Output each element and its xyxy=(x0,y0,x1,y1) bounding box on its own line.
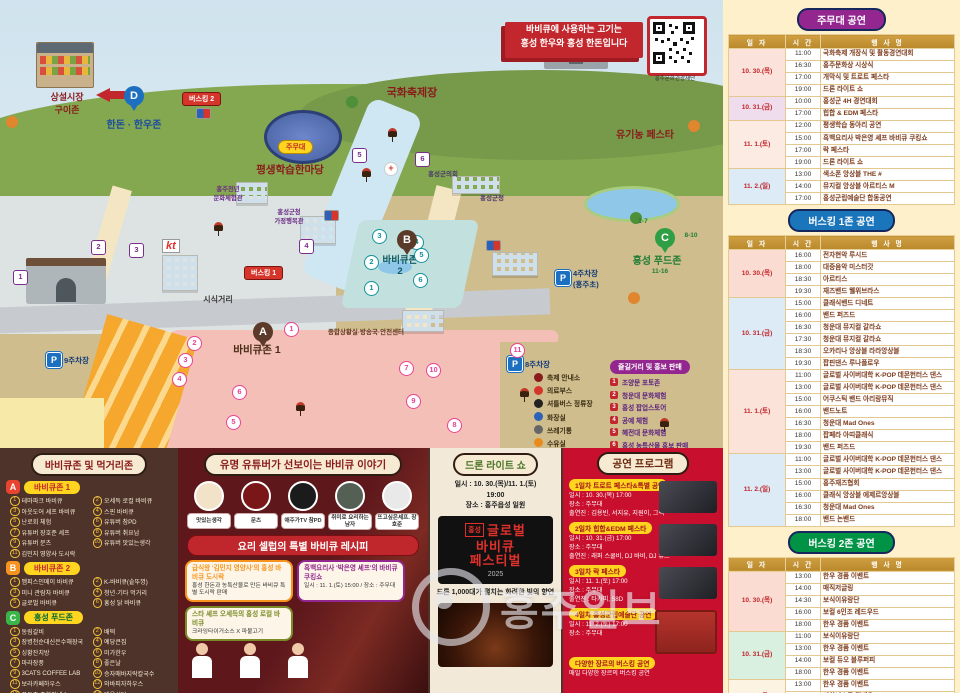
item-label: 김민지 영양사 도시락 xyxy=(22,549,76,558)
event-cell: 국화축제 개장식 및 활동경연대회 xyxy=(821,49,955,61)
bbq-photo xyxy=(438,603,553,667)
schedule-row: 10. 30.(목)11:00국화축제 개장식 및 활동경연대회 xyxy=(729,49,955,61)
program-item: 4일차 홍성군립예술단 공연일시 : 11. 2.(토) 17:00장소 : 주… xyxy=(569,608,717,654)
item-number: 8 xyxy=(93,658,103,668)
column-header: 행 사 명 xyxy=(821,557,955,571)
qr-caption: 홍주문화관광재단 xyxy=(640,74,710,82)
program-item-detail: 장소 : 주무대 xyxy=(569,501,655,510)
label-bbq-zone1: 바비큐존 1 xyxy=(222,342,292,357)
event-cell: 보컬 6인조 레드우드 xyxy=(821,607,955,619)
toilet-map-icon xyxy=(196,108,211,119)
youtuber-name: 맛있는생각 xyxy=(187,513,231,529)
youtuber-name: 취미로 요리하는남자 xyxy=(328,513,372,530)
zone-item: 2배떡 xyxy=(93,627,173,637)
medical-cross-icon: + xyxy=(384,162,398,176)
zone-item: 1멤피스인메이 바비큐 xyxy=(10,577,90,587)
event-cell: 청운대 Mad Ones xyxy=(821,418,955,430)
event-cell: 청운대 뮤지컬 갈라쇼 xyxy=(821,334,955,346)
event-cell: 한우 경품 이벤트 xyxy=(821,643,955,655)
event-cell: 뮤지컬 앙상블 아르티스 M xyxy=(821,181,955,193)
booth-number-bbq1: 5 xyxy=(226,415,241,430)
event-cell: 팝페라 아띠클래식 xyxy=(821,430,955,442)
zone-item: 1동림갈비 xyxy=(10,627,90,637)
enjoy-number: 1 xyxy=(610,378,618,386)
date-cell: 11. 1.(토) xyxy=(729,679,786,693)
youtuber: 취미로 요리하는남자 xyxy=(328,481,372,530)
label-main-stage: 주무대 xyxy=(278,140,313,154)
item-label: 와바피자하우스 xyxy=(104,679,143,688)
item-number: 6 xyxy=(93,648,103,658)
time-cell: 16:00 xyxy=(786,490,821,502)
event-cell: 팝핀댄스 루나폴로우 xyxy=(821,358,955,370)
time-cell: 16:00 xyxy=(786,607,821,619)
date-cell: 11. 2.(일) xyxy=(729,454,786,526)
attraction-number: 4 xyxy=(299,239,314,254)
schedule-row: 11. 1.(토)12:00평생학습 동아리 공연 xyxy=(729,121,955,133)
nursing-room-icon xyxy=(534,438,543,447)
time-cell: 14:00 xyxy=(786,583,821,595)
drone-caption: 드론 1,000대가 펼치는 화려한 빛의 향연 xyxy=(436,588,555,598)
program-item-detail: 출연진 : 타카피, 58D xyxy=(569,596,655,605)
event-cell: 매직저글링 xyxy=(821,583,955,595)
facility-legend-item: 쓰레기통 xyxy=(534,425,593,435)
recipe-title: 흑백요리사 '박은영 셰프'의 바비큐 쿠킹쇼 xyxy=(304,565,398,581)
item-number: 3 xyxy=(10,637,20,647)
label-food-range-left: 1-7 xyxy=(628,218,658,225)
facility-label: 의료부스 xyxy=(547,385,572,395)
recipe-desc: 크라잉타이거소스 X 파불고기 xyxy=(192,629,286,636)
qr-pattern xyxy=(653,22,695,64)
chef-figure xyxy=(287,643,309,678)
festival-logo-bbq: 바비큐 xyxy=(442,540,549,555)
event-cell: 흑백요리사 박은영 셰프 바비큐 쿠킹쇼 xyxy=(821,133,955,145)
youtuber-name: 뜨고싶은셰프. 장호준 xyxy=(375,513,419,530)
youtuber: 애주가TV 참PD xyxy=(281,481,325,530)
booth-number-bbq2: 2 xyxy=(364,255,379,270)
item-number: 10 xyxy=(93,669,103,679)
label-council: 홍성군의회 xyxy=(418,168,468,178)
item-label: 유튜버 맛있는생각 xyxy=(104,538,151,547)
enjoy-label: 공예 체험 xyxy=(622,415,648,425)
item-number: 3 xyxy=(10,588,20,598)
schedule-row: 11. 2.(일)11:00글로벌 사이버대학 K-POP 데몬헌터스 댄스 xyxy=(729,454,955,466)
time-cell: 17:30 xyxy=(786,334,821,346)
date-cell: 10. 31.(금) xyxy=(729,97,786,121)
time-cell: 13:00 xyxy=(786,643,821,655)
enjoy-number: 3 xyxy=(610,403,618,411)
zone-item: 10유튜버 맛있는생각 xyxy=(93,538,173,548)
event-cell: 홍주문화상 시상식 xyxy=(821,61,955,73)
zone-item: 5싱황잔치방 xyxy=(10,648,90,658)
booth-number-bbq1: 4 xyxy=(172,372,187,387)
zone-item: 4예당큰집 xyxy=(93,637,173,647)
item-number: 2 xyxy=(93,577,103,587)
attraction-number: 3 xyxy=(129,243,144,258)
artist-photo xyxy=(659,567,717,599)
zone-item: 7유튜버 장호준 셰프 xyxy=(10,528,90,538)
program-item-title: 2일차 힙합&EDM 페스타 xyxy=(569,522,652,534)
column-header: 일 자 xyxy=(729,236,786,250)
parking-icon: P xyxy=(46,352,62,368)
zone-item: 7마라장풍 xyxy=(10,658,90,668)
enjoy-legend-item: 4공예 체험 xyxy=(610,415,690,425)
program-item-detail: 장소 : 주무대 xyxy=(569,587,655,596)
event-cell: 재즈밴드 웰위브라스 xyxy=(821,286,955,298)
event-cell: 홍성군립예술단 합동공연 xyxy=(821,193,955,205)
zone-pin-letter: C xyxy=(661,232,669,244)
booth-number-bbq1: 6 xyxy=(232,385,247,400)
item-label: 동림갈비 xyxy=(22,627,44,636)
meat-banner: 바비큐에 사용하는 고기는 홍성 한우와 홍성 한돈입니다 xyxy=(505,22,643,58)
item-label: 아웃도어 셰프 바비큐 xyxy=(22,507,76,516)
time-cell: 17:00 xyxy=(786,109,821,121)
facility-legend-item: 수유실 xyxy=(534,438,593,448)
label-handon-zone: 한돈 · 한우존 xyxy=(92,116,176,131)
event-cell: 홍주재즈협회 xyxy=(821,478,955,490)
time-cell: 13:00 xyxy=(786,679,821,691)
zone-item: 2오세득 로컬 바비큐 xyxy=(93,496,173,506)
program-item-detail: 출연진 : 김용빈, 서지유, 지원이, 그랙 xyxy=(569,510,655,519)
event-cell: 밴드 퍼즈드 xyxy=(821,442,955,454)
recipe-desc: 일시 : 11. 1.(토) 15:00 / 장소 : 주무대 xyxy=(304,583,398,590)
event-cell: 밴드노트 xyxy=(821,406,955,418)
event-cell: 보식이유랑단 xyxy=(821,595,955,607)
schedule-row: 10. 30.(목)16:00전자현악 루시드 xyxy=(729,250,955,262)
item-label: K-바비큐(솥뚜껑) xyxy=(104,577,148,586)
item-number: 5 xyxy=(10,648,20,658)
date-cell: 10. 31.(금) xyxy=(729,631,786,679)
zone-item: 5난로회 체험 xyxy=(10,517,90,527)
time-cell: 13:00 xyxy=(786,169,821,181)
item-label: 마라장풍 xyxy=(22,658,44,667)
item-number: 9 xyxy=(10,538,20,548)
attraction-number: 2 xyxy=(91,240,106,255)
youtuber-avatar xyxy=(241,481,271,511)
item-number: 12 xyxy=(93,679,103,689)
toilet-icon xyxy=(534,412,543,421)
schedule-row: 10. 31.(금)10:00홍성군 4H 경연대회 xyxy=(729,97,955,109)
schedule-table: 버스킹 2존 공연일 자시 간행 사 명10. 30.(목)13:00한우 경품… xyxy=(728,531,955,693)
label-lifelong-learning: 평생학습한마당 xyxy=(240,162,340,177)
event-cell: 밴드 퍼즈드 xyxy=(821,310,955,322)
event-cell: 평생학습 동아리 공연 xyxy=(821,121,955,133)
youtuber-panel-title: 유명 유튜버가 선보이는 바비큐 이야기 xyxy=(204,453,402,476)
festival-logo-hongseong: 홍성 xyxy=(465,523,484,537)
time-cell: 18:30 xyxy=(786,274,821,286)
booth-number-bbq1: 9 xyxy=(406,394,421,409)
enjoy-legend-item: 3홍성 팝업스토어 xyxy=(610,402,690,412)
item-label: 멤피스인메이 바비큐 xyxy=(22,577,74,586)
label-heritage-center: 홍주천년 문화체험관 xyxy=(206,184,250,202)
facility-label: 축제 안내소 xyxy=(547,372,580,382)
schedule-grid: 일 자시 간행 사 명10. 30.(목)11:00국화축제 개장식 및 활동경… xyxy=(728,34,955,205)
time-cell: 18:00 xyxy=(786,430,821,442)
drone-show-panel: 드론 라이트 쇼 일시 : 10. 30.(목)/11. 1.(토) 19:00… xyxy=(428,448,563,693)
zone-item: 3장병천순대신은수해장국 xyxy=(10,637,90,647)
zone-pin-letter: A xyxy=(259,326,267,338)
zone-pin-letter: D xyxy=(130,90,138,102)
item-number: 13 xyxy=(10,690,20,693)
event-cell: 힙합 & EDM 페스타 xyxy=(821,109,955,121)
zone-item: 12와바피자하우스 xyxy=(93,679,173,689)
schedule-row: 11. 1.(토)11:00글로벌 사이버대학 K-POP 데몬헌터스 댄스 xyxy=(729,370,955,382)
zone-item: 4청년·기타 먹거리 xyxy=(93,588,173,598)
time-cell: 18:30 xyxy=(786,346,821,358)
item-number: 4 xyxy=(93,507,103,517)
time-cell: 19:30 xyxy=(786,442,821,454)
tree-icon xyxy=(628,292,640,304)
zone-pin-A: A xyxy=(253,322,273,342)
booth-number-bbq1: 8 xyxy=(447,418,462,433)
column-header: 일 자 xyxy=(729,35,786,49)
item-label: 싱황잔치방 xyxy=(22,648,50,657)
item-label: 오세득 로컬 바비큐 xyxy=(104,496,152,505)
enjoy-legend-item: 5혜전대 문화체험 xyxy=(610,427,690,437)
column-header: 일 자 xyxy=(729,557,786,571)
zone-pin-D: D xyxy=(124,86,144,106)
item-label: 홍성 닭 바비큐 xyxy=(104,598,141,607)
main-stage-illustration xyxy=(264,110,342,164)
schedule-grid: 일 자시 간행 사 명10. 30.(목)13:00한우 경품 이벤트14:00… xyxy=(728,557,955,693)
toilet-map-icon xyxy=(324,210,339,221)
enjoy-label: 홍성 농특산물 홍보 판매 xyxy=(622,440,688,448)
item-number: 3 xyxy=(10,507,20,517)
bbq-section: A바비큐존 11테마파크 바비큐2오세득 로컬 바비큐3아웃도어 셰프 바비큐4… xyxy=(6,480,172,558)
event-cell: 글로벌 사이버대학 K-POP 데몬헌터스 댄스 xyxy=(821,454,955,466)
booth-number-bbq1: 2 xyxy=(187,336,202,351)
youtuber: 맛있는생각 xyxy=(187,481,231,530)
item-label: 유튜버 취요남 xyxy=(104,528,139,537)
youtuber: 문츠 xyxy=(234,481,278,530)
parking-icon: P xyxy=(507,356,523,372)
booth-number-bbq1: 10 xyxy=(426,363,441,378)
enjoy-label: 조양문 포토존 xyxy=(622,377,660,387)
item-number: 7 xyxy=(10,658,20,668)
youtuber-name: 애주가TV 참PD xyxy=(281,513,325,529)
time-cell: 19:00 xyxy=(786,85,821,97)
recipe-title: 급식왕 '김민지 영양사'의 홍성 바비큐 도시락 xyxy=(192,565,286,581)
facility-label: 쓰레기통 xyxy=(547,425,572,435)
time-cell: 15:00 xyxy=(786,394,821,406)
map-yellow-area xyxy=(0,398,104,448)
date-cell: 10. 31.(금) xyxy=(729,298,786,370)
youtuber-avatar xyxy=(382,481,412,511)
parking-icon: P xyxy=(555,270,571,286)
facility-legend-item: 의료부스 xyxy=(534,385,593,395)
time-cell: 11:00 xyxy=(786,631,821,643)
date-cell: 10. 30.(목) xyxy=(729,571,786,631)
zone-item: 5글로벌 바비큐 xyxy=(10,598,90,608)
item-label: 좋은날 xyxy=(104,658,121,667)
time-cell: 13:00 xyxy=(786,466,821,478)
enjoy-label: 청운대 문화체험 xyxy=(622,390,666,400)
recipe-title: 스타 셰프 오세득의 홍성 로컬 바비큐 xyxy=(192,611,286,627)
event-cell: 전자현악 루시드 xyxy=(821,250,955,262)
date-cell: 11. 1.(토) xyxy=(729,370,786,454)
label-tasting-street: 시식거리 xyxy=(196,294,240,305)
enjoy-number: 2 xyxy=(610,391,618,399)
time-cell: 19:30 xyxy=(786,358,821,370)
zone-item: 13푸드존 종합안내소 xyxy=(10,690,90,693)
label-county-office: 홍성군청 xyxy=(472,192,512,202)
item-label: 예당큰집 xyxy=(104,637,126,646)
zone-item: 8좋은날 xyxy=(93,658,173,668)
label-food-range-right: 8-10 xyxy=(676,232,706,239)
event-cell: 드론 라이트 쇼 xyxy=(821,157,955,169)
schedule-title: 버스킹 2존 공연 xyxy=(788,531,894,554)
recipe-bubble: 스타 셰프 오세득의 홍성 로컬 바비큐크라잉타이거소스 X 파불고기 xyxy=(185,606,293,641)
shuttle-bus-icon xyxy=(534,399,543,408)
item-label: 유튜버 문츠 xyxy=(22,538,52,547)
date-cell: 10. 30.(목) xyxy=(729,49,786,97)
chef-figure xyxy=(191,643,213,678)
zone-badge: C xyxy=(6,611,20,625)
time-cell: 11:00 xyxy=(786,454,821,466)
zone-name: 홍성 푸드존 xyxy=(24,611,83,624)
artist-photo xyxy=(659,524,717,556)
facility-legend-item: 축제 안내소 xyxy=(534,372,593,382)
label-market: 상설시장 구이존 xyxy=(38,90,96,116)
column-header: 시 간 xyxy=(786,557,821,571)
facility-legend: 축제 안내소의료부스셔틀버스 정류장화장실쓰레기통수유실 xyxy=(534,372,593,448)
item-label: 미니 관람차 바비큐 xyxy=(22,588,70,597)
program-item-detail: 일시 : 11. 2.(토) 17:00 xyxy=(569,621,651,630)
schedule-grid: 일 자시 간행 사 명10. 30.(목)16:00전자현악 루시드18:00대… xyxy=(728,235,955,526)
item-number: 6 xyxy=(93,598,103,608)
item-label: 장병천순대신은수해장국 xyxy=(22,637,84,646)
facility-label: 화장실 xyxy=(547,412,566,422)
date-cell: 11. 2.(일) xyxy=(729,169,786,205)
time-cell: 10:00 xyxy=(786,97,821,109)
chef-figure xyxy=(239,643,261,678)
item-number: 4 xyxy=(93,588,103,598)
zone-name: 바비큐존 1 xyxy=(24,481,80,494)
time-cell: 17:00 xyxy=(786,193,821,205)
grill-icon xyxy=(520,388,529,397)
youtuber: 뜨고싶은셰프. 장호준 xyxy=(375,481,419,530)
toilet-map-icon xyxy=(486,240,501,251)
tree-icon xyxy=(6,116,18,128)
program-item-title: 다양한 장르의 버스킹 공연 xyxy=(569,657,655,669)
zone-item: 93CATS COFFEE LAB xyxy=(10,669,90,679)
item-number: 1 xyxy=(10,627,20,637)
zone-item: 8유튜버 취요남 xyxy=(93,528,173,538)
booth-number-bbq2: 3 xyxy=(372,229,387,244)
youtuber-avatar xyxy=(194,481,224,511)
market-stall-icon xyxy=(36,42,94,88)
event-cell: 대중음악 미스터갓 xyxy=(821,262,955,274)
drone-panel-title: 드론 라이트 쇼 xyxy=(453,453,538,476)
program-item: 1일차 트로트 페스타&특별 공연일시 : 10. 30.(목) 17:00장소… xyxy=(569,479,717,519)
festival-poster: kt + 바비큐에 사용하는 고기는 홍성 한우와 홍성 한돈입니다 xyxy=(0,0,960,693)
zone-item: 6홍성 닭 바비큐 xyxy=(93,598,173,608)
event-cell: 클래식 앙상블 에제르앙상블 xyxy=(821,490,955,502)
column-header: 행 사 명 xyxy=(821,236,955,250)
bbq-section: B바비큐존 21멤피스인메이 바비큐2K-바비큐(솥뚜껑)3미니 관람차 바비큐… xyxy=(6,561,172,608)
drone-date: 일시 : 10. 30.(목)/11. 1.(토) xyxy=(436,480,555,491)
enjoy-number: 6 xyxy=(610,441,618,448)
attraction-number: 1 xyxy=(13,270,28,285)
trash-icon xyxy=(534,425,543,434)
enjoy-number: 5 xyxy=(610,428,618,436)
event-cell: 한우 경품 이벤트 xyxy=(821,571,955,583)
tree-icon xyxy=(346,96,358,108)
time-cell: 11:00 xyxy=(786,370,821,382)
time-cell: 18:00 xyxy=(786,514,821,526)
enjoy-label: 홍성 팝업스토어 xyxy=(622,402,666,412)
zone-item: 6유튜버 참PD xyxy=(93,517,173,527)
program-item: 3일차 락 페스타일시 : 11. 1.(토) 17:00장소 : 주무대출연진… xyxy=(569,565,717,605)
program-panel-title: 공연 프로그램 xyxy=(597,452,690,475)
zone-item: 1테마파크 바비큐 xyxy=(10,496,90,506)
zone-item: 6미가한우 xyxy=(93,648,173,658)
event-cell: 글로벌 사이버대학 K-POP 데몬헌터스 댄스 xyxy=(821,382,955,394)
arrow-icon xyxy=(96,88,110,102)
schedule-title: 버스킹 1존 공연 xyxy=(788,209,894,232)
item-number: 1 xyxy=(10,577,20,587)
youtuber-panel: 유명 유튜버가 선보이는 바비큐 이야기 맛있는생각문츠애주가TV 참PD취미로… xyxy=(178,448,428,693)
item-label: 유튜버 장호준 셰프 xyxy=(22,528,70,537)
item-number: 2 xyxy=(93,496,103,506)
schedule-table: 버스킹 1존 공연일 자시 간행 사 명10. 30.(목)16:00전자현악 … xyxy=(728,209,955,526)
enjoy-legend-item: 2청운대 문화체험 xyxy=(610,390,690,400)
item-number: 5 xyxy=(10,598,20,608)
artist-photo xyxy=(659,481,717,513)
info-icon xyxy=(534,373,543,382)
event-cell: 보식이유랑단 xyxy=(821,631,955,643)
zone-item: 11김민지 영양사 도시락 xyxy=(10,549,90,559)
facility-legend-item: 셔틀버스 정류장 xyxy=(534,398,593,408)
column-header: 시 간 xyxy=(786,35,821,49)
label-parking9: 9주차장 xyxy=(64,355,89,366)
event-cell: 색소폰 앙상블 THE # xyxy=(821,169,955,181)
item-number: 5 xyxy=(10,517,20,527)
grill-icon xyxy=(388,128,397,137)
program-item-detail: 출연진 : 래퍼 스쿨비, DJ 바비, DJ 뮤즈 xyxy=(569,553,655,562)
qr-code xyxy=(647,16,707,76)
time-cell: 16:30 xyxy=(786,61,821,73)
zone-item: 11보라카페하우스 xyxy=(10,679,90,689)
time-cell: 18:00 xyxy=(786,619,821,631)
bbq-section: C홍성 푸드존1동림갈비2배떡3장병천순대신은수해장국4예당큰집5싱황잔치방6미… xyxy=(6,611,172,693)
event-cell: 한우 경품 이벤트 xyxy=(821,619,955,631)
event-cell: 아르티스 xyxy=(821,274,955,286)
label-parking8: 8주차장 xyxy=(525,359,550,370)
enjoy-number: 4 xyxy=(610,416,618,424)
item-label: 유튜버 참PD xyxy=(104,517,137,526)
schedule-table: 주무대 공연일 자시 간행 사 명10. 30.(목)11:00국화축제 개장식… xyxy=(728,8,955,205)
time-cell: 17:00 xyxy=(786,145,821,157)
zone-badge: B xyxy=(6,561,20,575)
time-cell: 15:00 xyxy=(786,133,821,145)
event-cell: 밴드 논밴드 xyxy=(821,514,955,526)
label-chrysanthemum: 국화축제장 xyxy=(372,84,452,100)
chef-figures xyxy=(191,643,421,678)
event-cell: 개막식 및 트로트 페스타 xyxy=(821,73,955,85)
festival-logo-global: 글로벌 xyxy=(487,523,526,538)
program-item-detail: 일시 : 10. 31.(금) 17:00 xyxy=(569,535,655,544)
recipe-banner-title: 요리 셀럽의 특별 바비큐 레시피 xyxy=(187,535,419,556)
time-cell: 16:30 xyxy=(786,322,821,334)
event-cell: 청운대 Mad Ones xyxy=(821,502,955,514)
zone-badge: A xyxy=(6,480,20,494)
zone-item: 3미니 관람차 바비큐 xyxy=(10,588,90,598)
festival-map: kt + 바비큐에 사용하는 고기는 홍성 한우와 홍성 한돈입니다 xyxy=(0,0,723,448)
label-busking1: 버스킹 1 xyxy=(244,266,283,280)
time-cell: 16:00 xyxy=(786,250,821,262)
zone-item: 14태을식당 xyxy=(93,690,173,693)
festival-logo: 홍성글로벌 바비큐 페스티벌 2025 xyxy=(438,516,553,585)
